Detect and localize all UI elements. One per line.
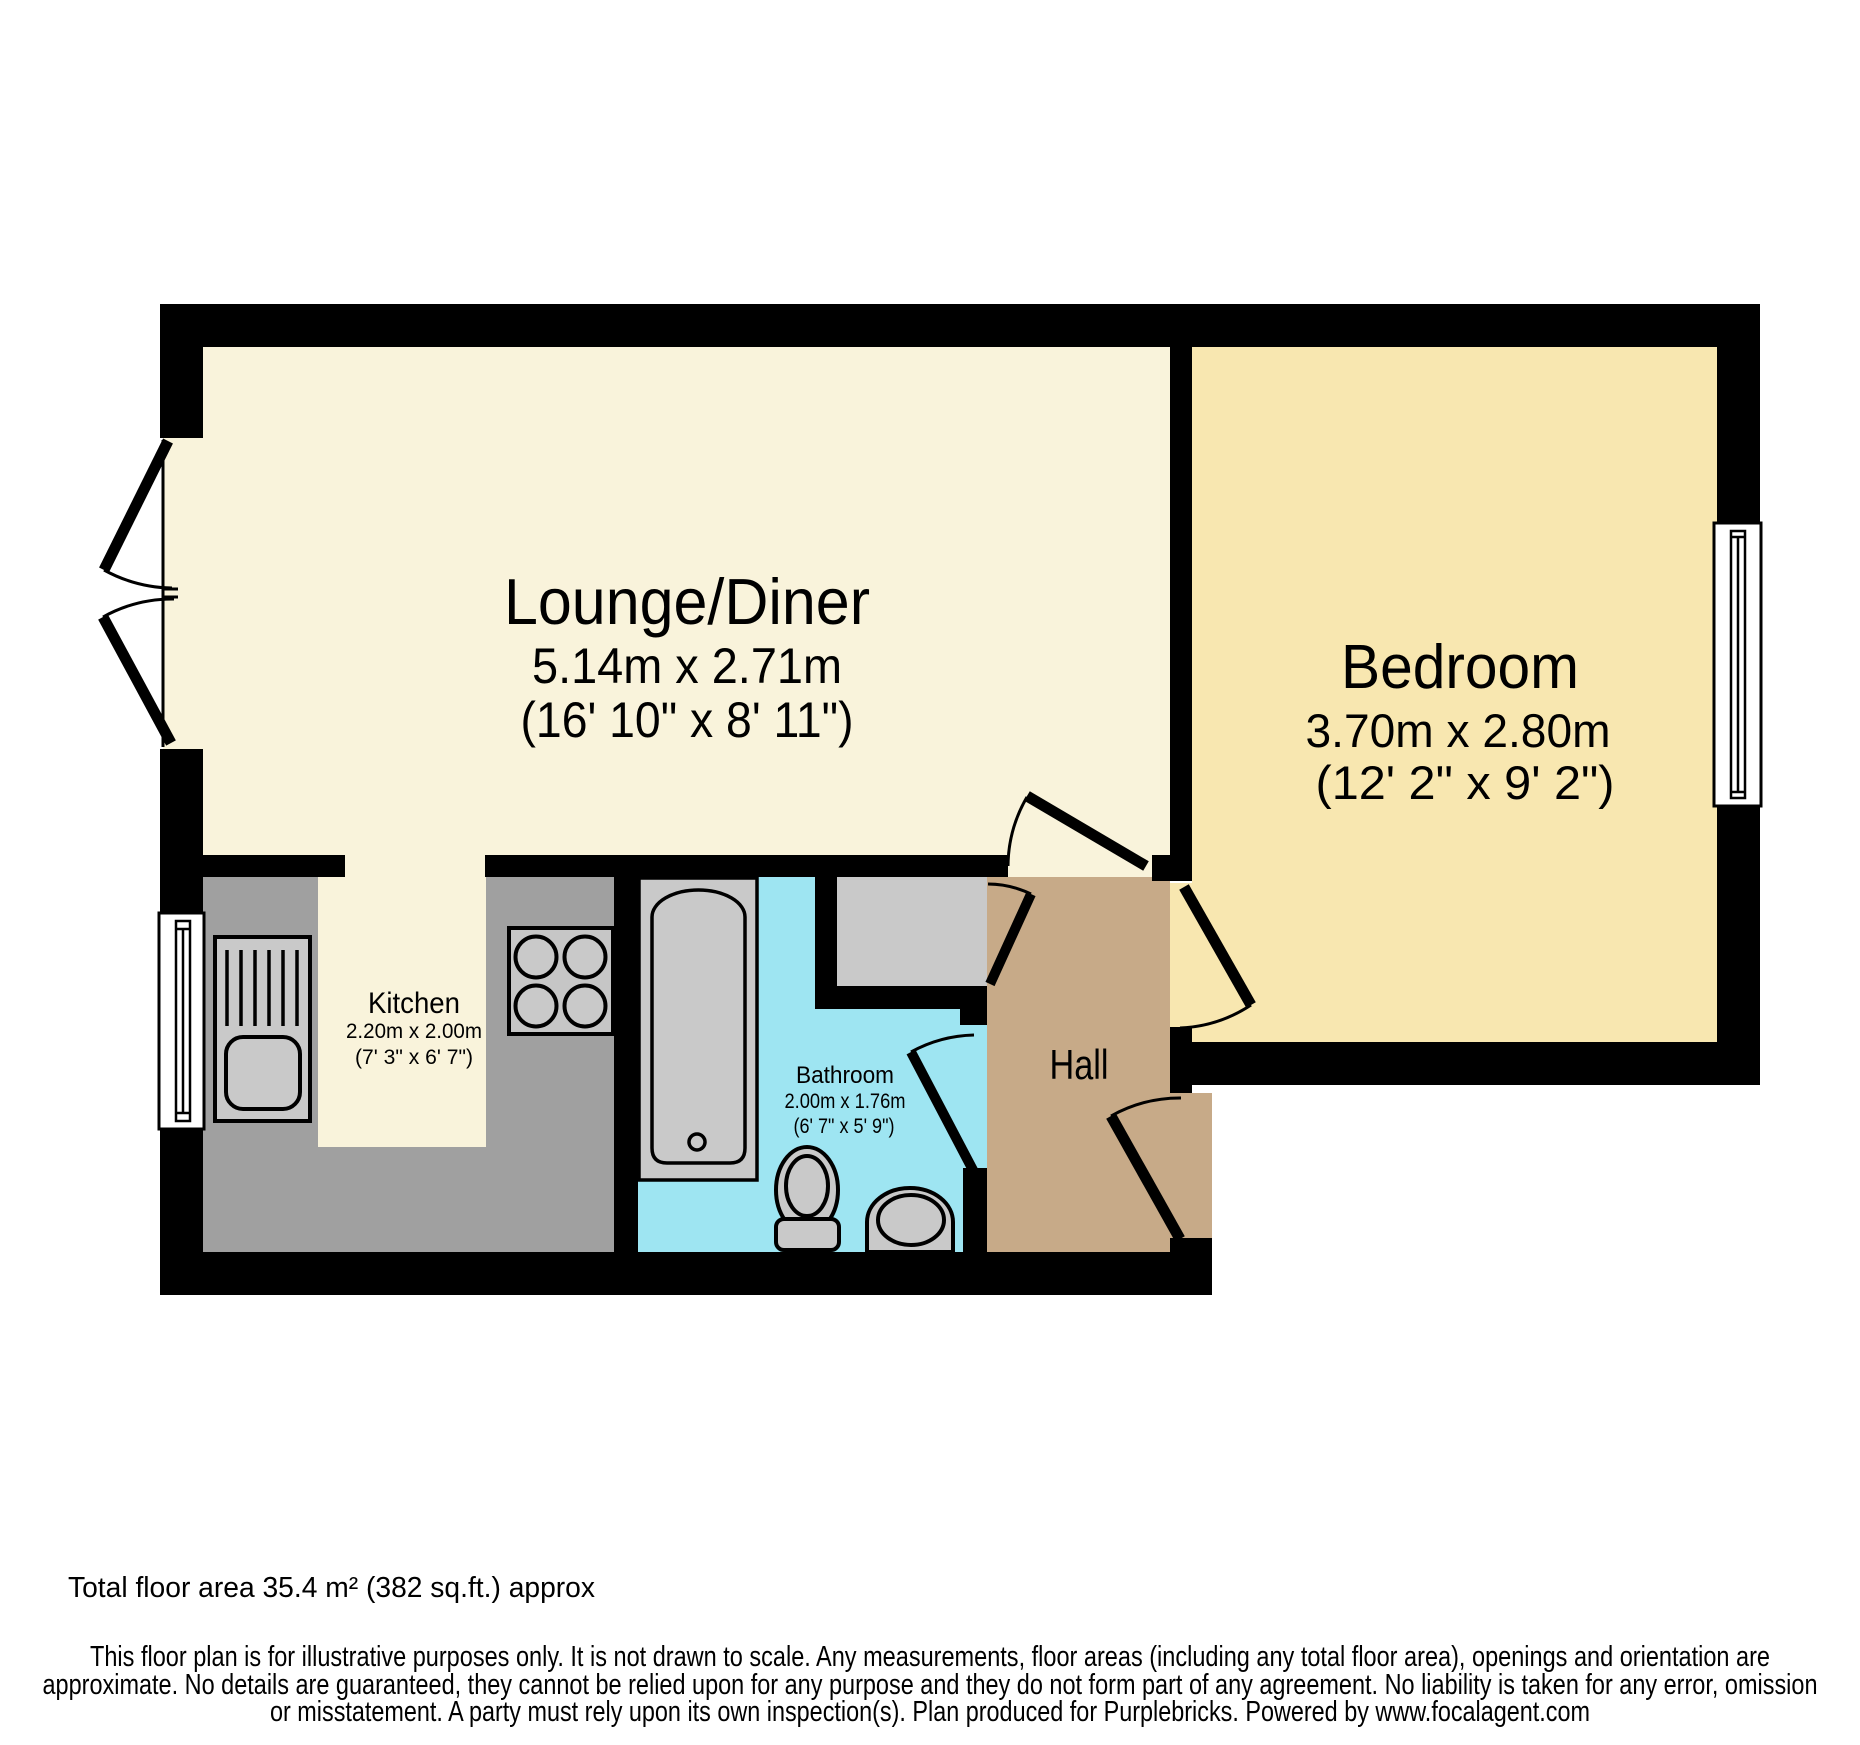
svg-text:Bedroom: Bedroom xyxy=(1341,633,1579,702)
svg-text:Hall: Hall xyxy=(1050,1041,1109,1088)
svg-text:5.14m x 2.71m: 5.14m x 2.71m xyxy=(532,638,842,694)
svg-text:Kitchen: Kitchen xyxy=(368,987,460,1020)
svg-text:2.00m x 1.76m: 2.00m x 1.76m xyxy=(785,1090,906,1113)
svg-text:3.70m x 2.80m: 3.70m x 2.80m xyxy=(1306,704,1611,757)
svg-text:(6' 7" x 5' 9"): (6' 7" x 5' 9") xyxy=(794,1115,895,1138)
svg-text:(16' 10" x 8' 11"): (16' 10" x 8' 11") xyxy=(521,692,854,748)
svg-text:(7' 3" x 6' 7"): (7' 3" x 6' 7") xyxy=(355,1046,473,1069)
svg-text:(12' 2" x 9' 2"): (12' 2" x 9' 2") xyxy=(1316,756,1615,809)
svg-text:Total floor area 35.4 m² (382: Total floor area 35.4 m² (382 sq.ft.) ap… xyxy=(68,1572,595,1604)
svg-text:2.20m x 2.00m: 2.20m x 2.00m xyxy=(346,1020,482,1043)
svg-text:Bathroom: Bathroom xyxy=(796,1062,894,1089)
svg-text:or misstatement. A party must: or misstatement. A party must rely upon … xyxy=(270,1696,1590,1728)
svg-text:Lounge/Diner: Lounge/Diner xyxy=(504,565,870,638)
